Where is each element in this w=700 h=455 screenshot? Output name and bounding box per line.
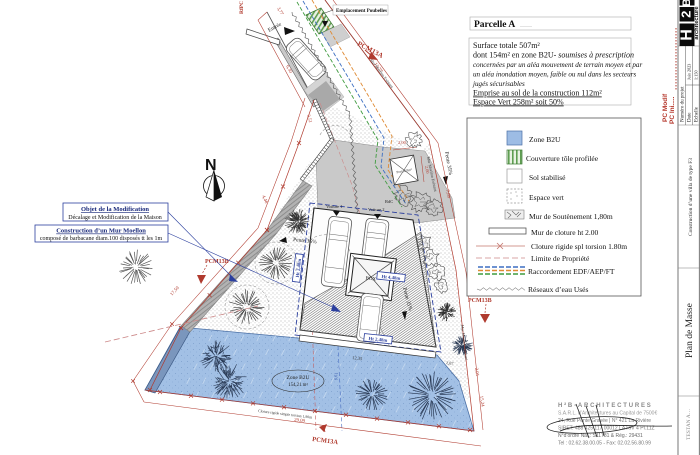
svg-text:......: ...... [520,20,532,29]
svg-text:RfPC: RfPC [239,1,245,14]
svg-text:Emprise au sol de la construct: Emprise au sol de la construction 112m² [473,89,602,98]
svg-text:Emplacement Poubelles: Emplacement Poubelles [336,9,387,14]
svg-text:architecture: architecture [694,6,700,40]
svg-text:composé de barbacane diam.100: composé de barbacane diam.100 disposés t… [40,236,163,242]
svg-text:Date: Date [688,112,693,122]
svg-text:Raccordement EDF/AEP/FT: Raccordement EDF/AEP/FT [528,267,615,276]
svg-text:Juin 2023: Juin 2023 [687,64,692,80]
svg-text:Mur de cloture ht 2.00: Mur de cloture ht 2.00 [531,228,599,237]
svg-text:Réseaux d’eau Usés: Réseaux d’eau Usés [528,285,588,294]
svg-text:Construction d’un Mur Moellon: Construction d’un Mur Moellon [56,228,146,235]
svg-text:Parcelle A: Parcelle A [474,20,515,30]
svg-text:SIRET: 488 425 117 00012 LA RI: SIRET: 488 425 117 00012 LA RIV 4 PI.11Z [558,426,655,432]
svg-text:B: B [681,0,693,6]
svg-text:Mur de Soutènement 1,80m: Mur de Soutènement 1,80m [529,212,613,221]
svg-text:un aléa inondation moyen, faib: un aléa inondation moyen, faible ou nul … [473,71,636,79]
svg-text:Limite de Propriété: Limite de Propriété [531,254,590,263]
svg-text:H: H [679,29,696,41]
svg-text:2: 2 [679,11,694,18]
svg-text:Numéro du projet: Numéro du projet [681,86,686,122]
svg-text:Echelle: Echelle [695,106,700,122]
svg-text:concernées par un aléa mouveme: concernées par un aléa mouvement de terr… [473,61,642,69]
svg-text:Voiture 2: Voiture 2 [368,207,385,212]
svg-text:N°d’ordre Nat.: S11781 & Rég.:: N°d’ordre Nat.: S11781 & Rég.: 29431 [558,433,643,439]
svg-text:Couverture tôle profilée: Couverture tôle profilée [526,154,599,163]
svg-text:PC Ini.....: PC Ini..... [669,96,676,124]
svg-text:1:150: 1:150 [694,70,699,80]
svg-text:Objet de la Modification: Objet de la Modification [81,206,149,213]
svg-text:Sol stabilisé: Sol stabilisé [529,173,566,182]
svg-text:dont 154m² en zone B2U- soumi: dont 154m² en zone B2U- soumises à presc… [473,51,634,60]
svg-text:Voiture 1: Voiture 1 [326,204,343,209]
svg-text:Espace vert: Espace vert [529,193,565,202]
svg-text:RdC: RdC [385,199,393,204]
svg-text:Surface totale 507m²: Surface totale 507m² [473,41,540,50]
svg-text:PCM13B: PCM13B [468,298,492,304]
svg-text:H²B-ARCHITECTURES: H²B-ARCHITECTURES [558,402,653,409]
svg-text:Tel : 02.62.38.00.05 - Fax: 02: Tel : 02.62.38.00.05 - Fax: 02.02.56.80.… [558,441,651,447]
svg-text:N: N [205,157,217,174]
svg-text:Zone B2U: Zone B2U [529,135,561,144]
svg-text:Décalage et Modification de la: Décalage et Modification de la Maison [68,214,161,221]
svg-text:Zone B2U: Zone B2U [286,375,309,381]
svg-text:154,21 m²: 154,21 m² [288,382,308,388]
svg-text:Construction d’une villa de ty: Construction d’une villa de type F3 [688,158,694,236]
svg-text:jugés sécurisables: jugés sécurisables [472,80,525,88]
svg-text:Espace Vert 258m² soit 50%: Espace Vert 258m² soit 50% [473,98,564,107]
svg-text:S.A.R.L. d’Architectures au Ca: S.A.R.L. d’Architectures au Capital de 7… [558,411,657,417]
svg-text:PC Modif: PC Modif [662,93,669,122]
svg-text:Plan de Masse: Plan de Masse [685,303,695,358]
svg-text:TESTAN A…: TESTAN A… [686,409,692,440]
svg-text:Cloture rigide spl torsion 1.8: Cloture rigide spl torsion 1.80m [531,242,627,251]
